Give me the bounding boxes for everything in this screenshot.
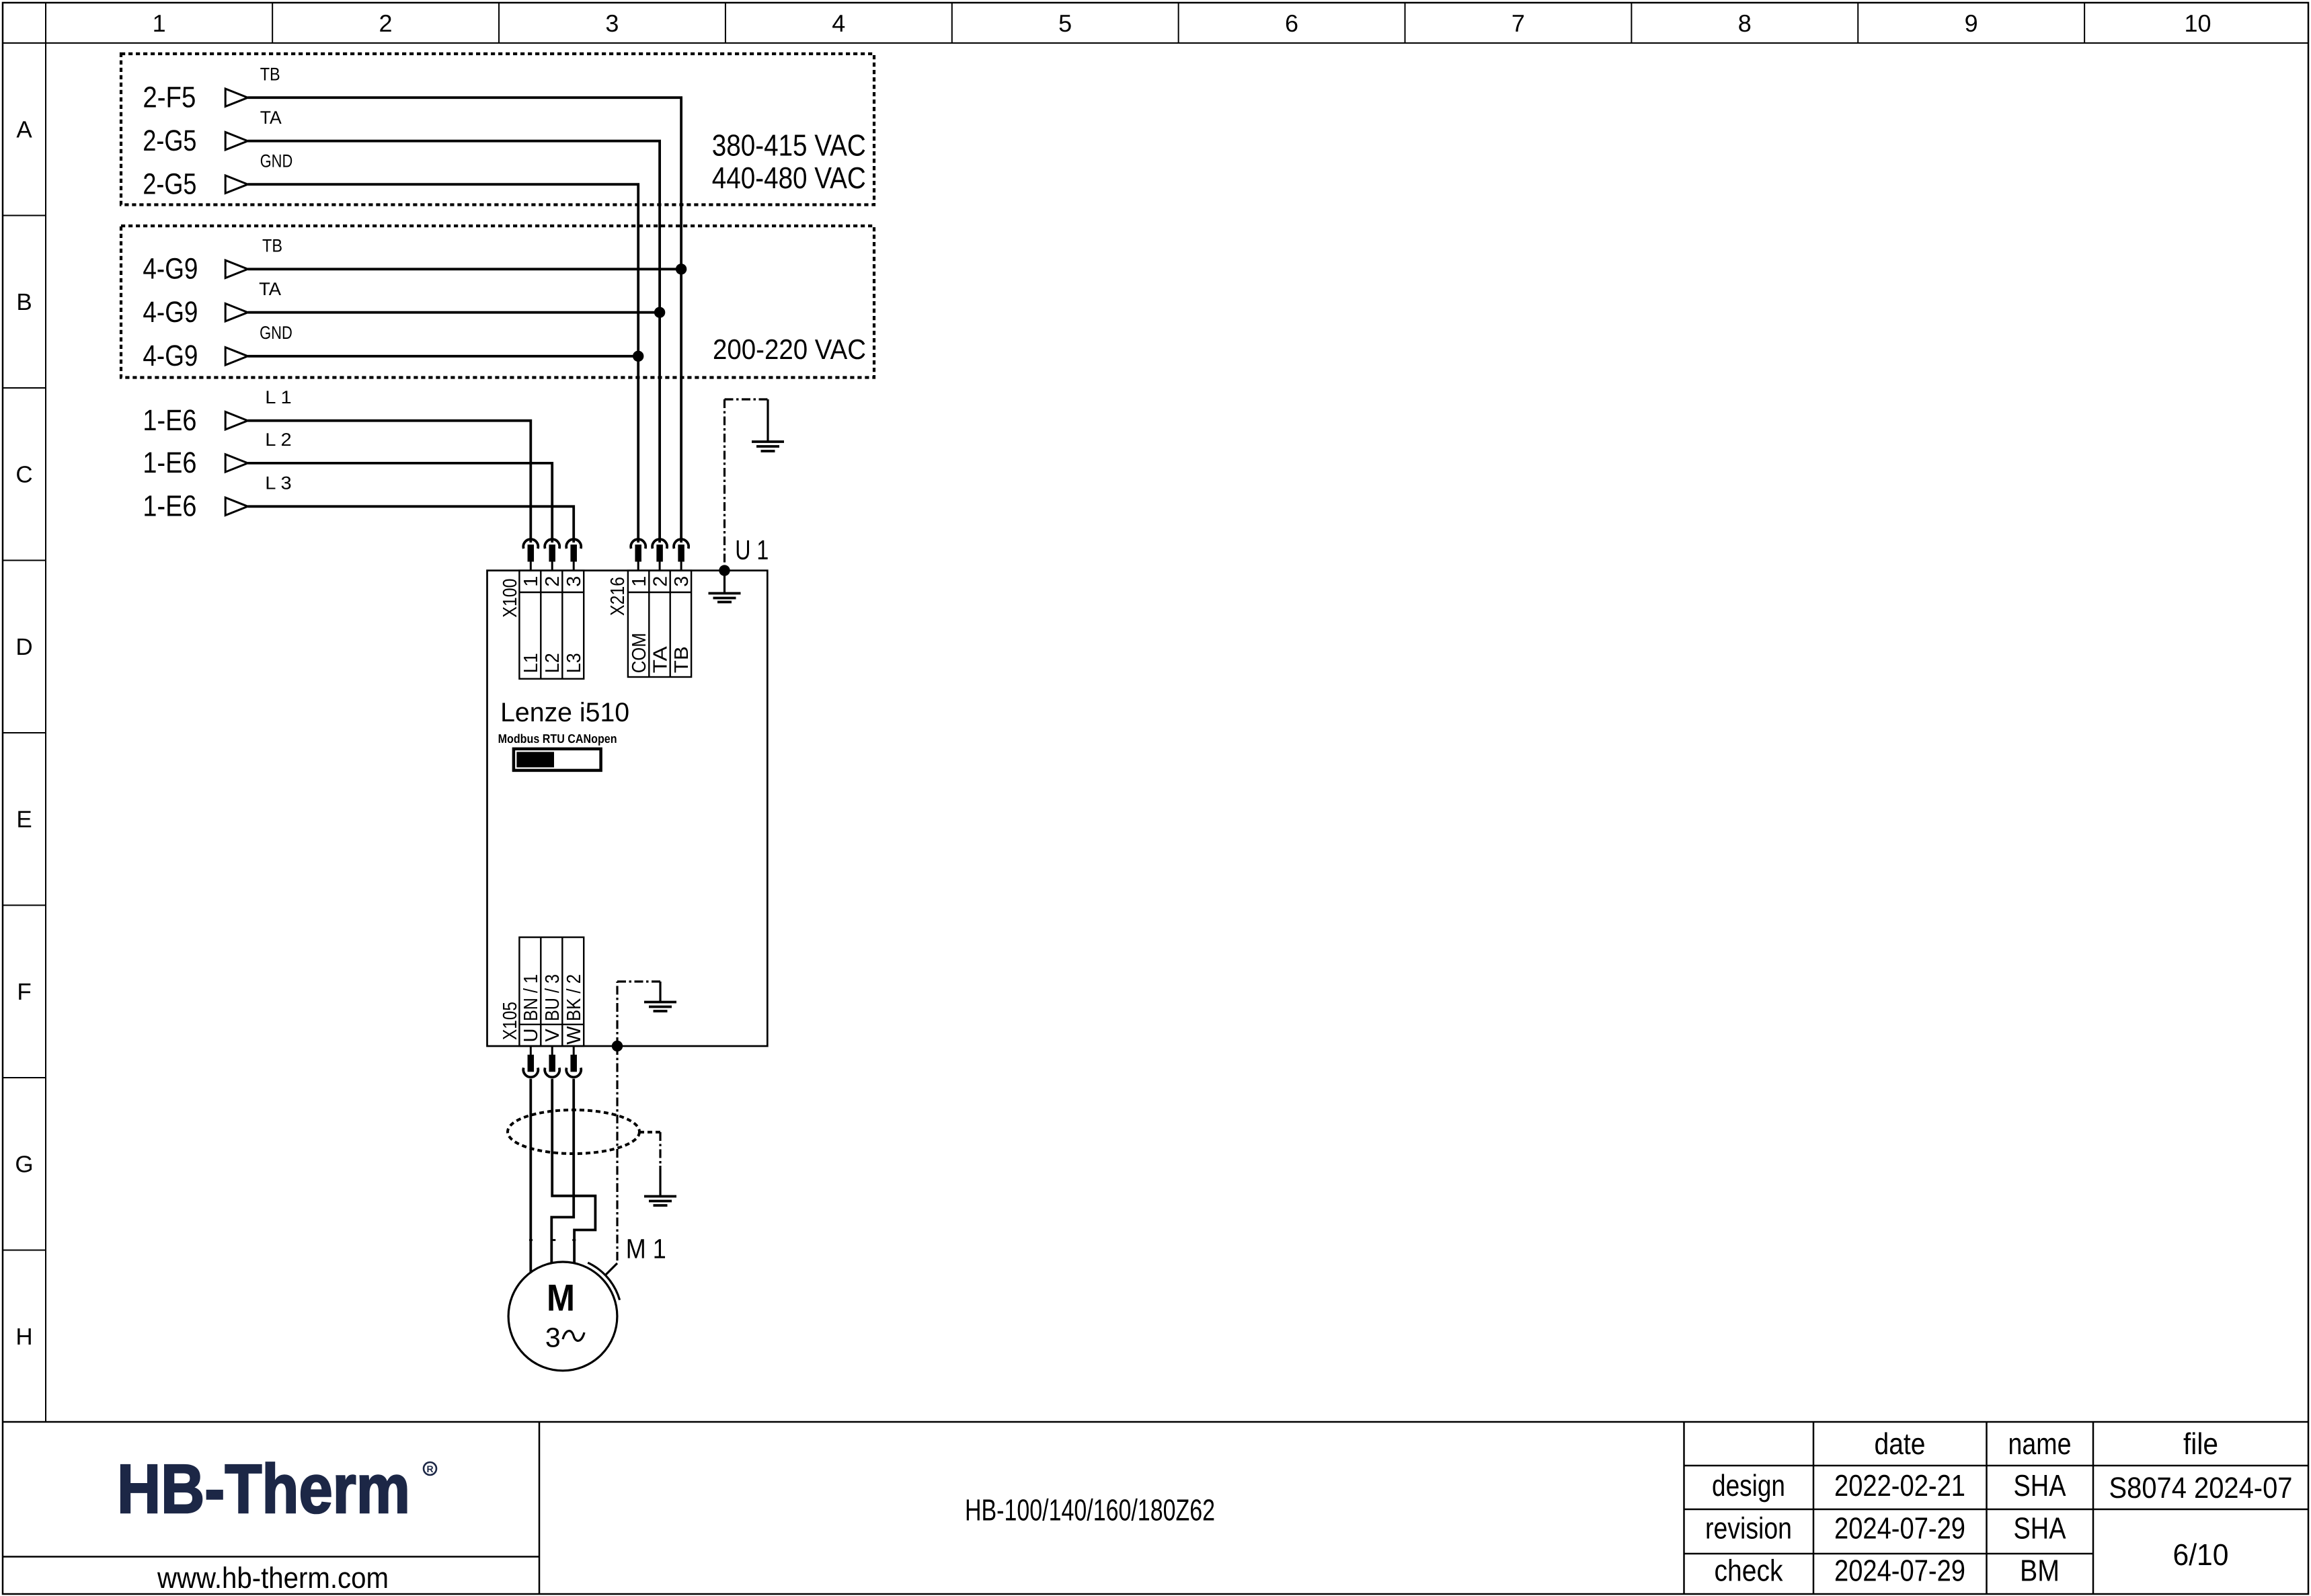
- svg-text:TB: TB: [262, 235, 282, 255]
- svg-text:X100: X100: [500, 579, 521, 618]
- svg-text:3: 3: [545, 1322, 561, 1353]
- svg-text:3: 3: [605, 9, 619, 37]
- svg-text:TB: TB: [260, 64, 280, 84]
- svg-text:Lenze i510: Lenze i510: [500, 698, 629, 727]
- svg-text:revision: revision: [1705, 1511, 1792, 1546]
- svg-text:3: 3: [563, 576, 585, 587]
- svg-text:2-F5: 2-F5: [143, 81, 196, 114]
- svg-text:W: W: [563, 1026, 585, 1045]
- svg-text:SHA: SHA: [2014, 1468, 2066, 1503]
- svg-text:check: check: [1715, 1554, 1783, 1588]
- svg-text:file: file: [2183, 1427, 2218, 1461]
- svg-text:8: 8: [1738, 9, 1752, 37]
- svg-text:GND: GND: [260, 151, 293, 171]
- svg-text:1: 1: [629, 576, 650, 587]
- svg-text:TA: TA: [650, 646, 672, 674]
- svg-text:SHA: SHA: [2014, 1511, 2066, 1546]
- svg-text:G: G: [15, 1152, 33, 1178]
- svg-text:L 2: L 2: [265, 430, 291, 450]
- svg-text:R: R: [426, 1464, 433, 1474]
- svg-text:1-E6: 1-E6: [143, 490, 196, 523]
- svg-text:B: B: [16, 289, 32, 315]
- svg-text:www.hb-therm.com: www.hb-therm.com: [157, 1562, 389, 1595]
- svg-text:1-E6: 1-E6: [143, 404, 196, 437]
- svg-text:HB-Therm: HB-Therm: [117, 1450, 410, 1527]
- svg-text:2: 2: [542, 576, 563, 587]
- svg-text:7: 7: [1512, 9, 1525, 37]
- svg-text:S8074 2024-07: S8074 2024-07: [2109, 1472, 2293, 1505]
- svg-text:2024-07-29: 2024-07-29: [1834, 1511, 1965, 1546]
- svg-text:BN / 1: BN / 1: [520, 974, 542, 1021]
- svg-text:1-E6: 1-E6: [143, 446, 196, 479]
- svg-text:9: 9: [1965, 9, 1978, 37]
- svg-text:M 1: M 1: [626, 1233, 666, 1264]
- svg-text:X216: X216: [607, 577, 629, 616]
- svg-text:440-480 VAC: 440-480 VAC: [712, 161, 866, 195]
- svg-text:2-G5: 2-G5: [143, 168, 196, 201]
- svg-text:A: A: [16, 117, 32, 143]
- svg-text:name: name: [2008, 1427, 2072, 1461]
- svg-text:TB: TB: [671, 646, 693, 673]
- svg-text:3: 3: [671, 576, 693, 587]
- svg-text:6/10: 6/10: [2173, 1538, 2229, 1572]
- svg-text:BK / 2: BK / 2: [563, 974, 585, 1021]
- svg-text:GND: GND: [260, 323, 292, 343]
- svg-text:5: 5: [1058, 9, 1072, 37]
- svg-text:4: 4: [832, 9, 845, 37]
- svg-text:V: V: [542, 1029, 563, 1042]
- svg-text:D: D: [15, 634, 32, 660]
- svg-text:4-G9: 4-G9: [143, 253, 198, 286]
- svg-text:2: 2: [650, 576, 672, 587]
- svg-text:10: 10: [2185, 9, 2211, 37]
- svg-text:L 3: L 3: [265, 473, 291, 493]
- svg-text:BU / 3: BU / 3: [542, 974, 563, 1021]
- svg-text:L 1: L 1: [265, 387, 291, 407]
- svg-text:2: 2: [379, 9, 393, 37]
- svg-text:Modbus RTU CANopen: Modbus RTU CANopen: [498, 731, 617, 746]
- svg-text:L3: L3: [563, 653, 585, 673]
- svg-text:200-220 VAC: 200-220 VAC: [713, 333, 866, 365]
- svg-text:L2: L2: [542, 653, 563, 673]
- svg-text:U 1: U 1: [735, 534, 769, 565]
- svg-text:H: H: [15, 1324, 32, 1350]
- svg-text:HB-100/140/160/180Z62: HB-100/140/160/180Z62: [965, 1492, 1215, 1527]
- svg-text:L1: L1: [520, 653, 542, 673]
- svg-text:TA: TA: [260, 108, 282, 128]
- svg-text:M: M: [547, 1276, 575, 1318]
- svg-text:date: date: [1875, 1427, 1926, 1461]
- svg-text:C: C: [15, 462, 32, 488]
- svg-text:F: F: [17, 979, 31, 1005]
- svg-text:1: 1: [520, 576, 542, 587]
- svg-text:design: design: [1712, 1468, 1785, 1503]
- svg-text:2-G5: 2-G5: [143, 124, 196, 157]
- svg-text:TA: TA: [259, 279, 281, 299]
- svg-text:4-G9: 4-G9: [143, 340, 198, 372]
- svg-text:380-415 VAC: 380-415 VAC: [712, 128, 866, 162]
- svg-text:4-G9: 4-G9: [143, 296, 198, 329]
- svg-text:1: 1: [153, 9, 166, 37]
- svg-text:2022-02-21: 2022-02-21: [1834, 1468, 1965, 1503]
- svg-text:U: U: [520, 1029, 542, 1043]
- svg-text:BM: BM: [2020, 1554, 2060, 1588]
- svg-text:2024-07-29: 2024-07-29: [1834, 1554, 1965, 1588]
- svg-text:X105: X105: [500, 1002, 521, 1040]
- svg-text:COM: COM: [629, 633, 650, 673]
- svg-text:6: 6: [1285, 9, 1298, 37]
- svg-text:E: E: [16, 807, 32, 833]
